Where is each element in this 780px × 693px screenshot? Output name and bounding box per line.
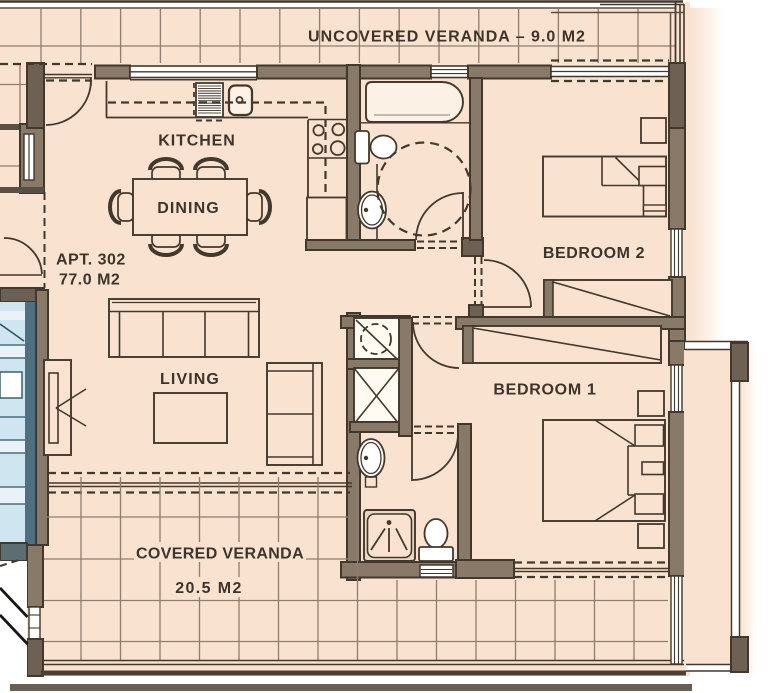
- svg-text:DINING: DINING: [157, 200, 220, 217]
- svg-text:KITCHEN: KITCHEN: [158, 133, 235, 150]
- svg-text:COVERED VERANDA: COVERED VERANDA: [136, 546, 304, 563]
- svg-text:BEDROOM 1: BEDROOM 1: [493, 382, 596, 399]
- svg-text:APT. 302: APT. 302: [56, 252, 126, 269]
- svg-text:BEDROOM 2: BEDROOM 2: [543, 245, 645, 262]
- svg-text:77.0 M2: 77.0 M2: [59, 272, 120, 289]
- svg-text:LIVING: LIVING: [160, 371, 220, 388]
- svg-text:20.5 M2: 20.5 M2: [175, 580, 243, 597]
- svg-text:UNCOVERED VERANDA – 9.0 M2: UNCOVERED VERANDA – 9.0 M2: [308, 29, 586, 46]
